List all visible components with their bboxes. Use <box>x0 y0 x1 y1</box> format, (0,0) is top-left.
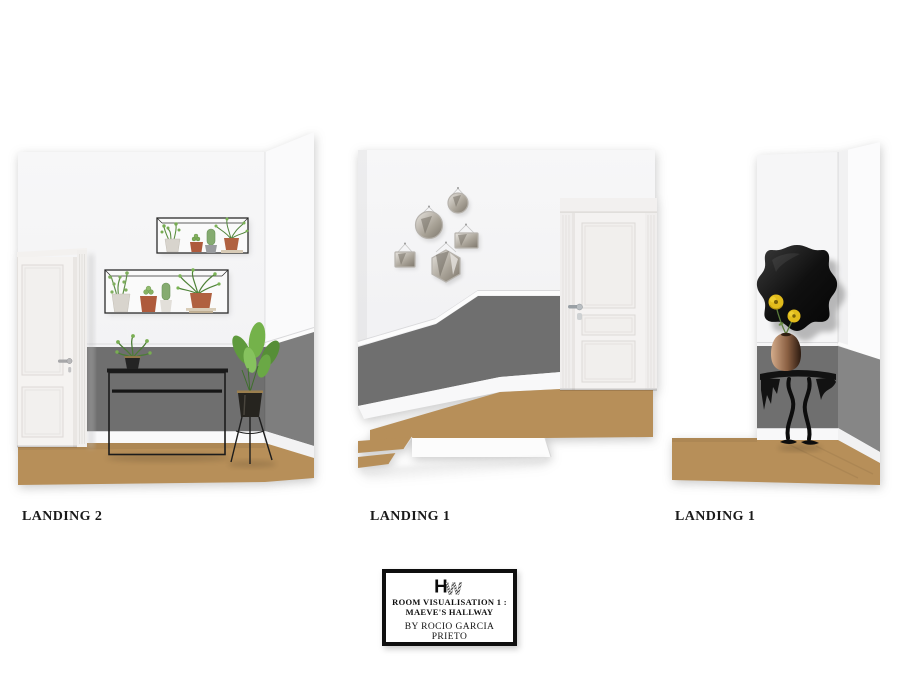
title-block: H W ROOM VISUALISATION 1 : MAEVE'S HALLW… <box>382 569 517 646</box>
title-line-1: ROOM VISUALISATION 1 : <box>392 597 507 607</box>
byline: BY ROCIO GARCIA PRIETO <box>386 622 513 642</box>
door-panels <box>22 265 63 437</box>
door-panels <box>582 223 635 382</box>
view-landing-1-corner: LANDING 1 <box>668 128 880 528</box>
landing-1-corner-illustration <box>668 128 880 493</box>
view-label: LANDING 1 <box>370 509 450 525</box>
view-landing-2: LANDING 2 <box>14 126 314 531</box>
wall-shelf-lower <box>105 268 230 315</box>
wall-shelf-upper <box>157 218 250 256</box>
door <box>560 198 657 391</box>
logo-letter-w: W <box>445 578 462 596</box>
hw-logo: H W <box>420 575 480 597</box>
door <box>17 248 94 448</box>
landing-2-illustration <box>14 126 314 488</box>
design-board: LANDING 2 <box>0 0 900 675</box>
title-line-2: MAEVE'S HALLWAY <box>406 607 494 617</box>
view-label: LANDING 1 <box>675 509 755 525</box>
view-landing-1-stairs: LANDING 1 <box>352 145 662 535</box>
view-label: LANDING 2 <box>22 509 102 525</box>
landing-1-stairs-illustration <box>352 145 662 500</box>
